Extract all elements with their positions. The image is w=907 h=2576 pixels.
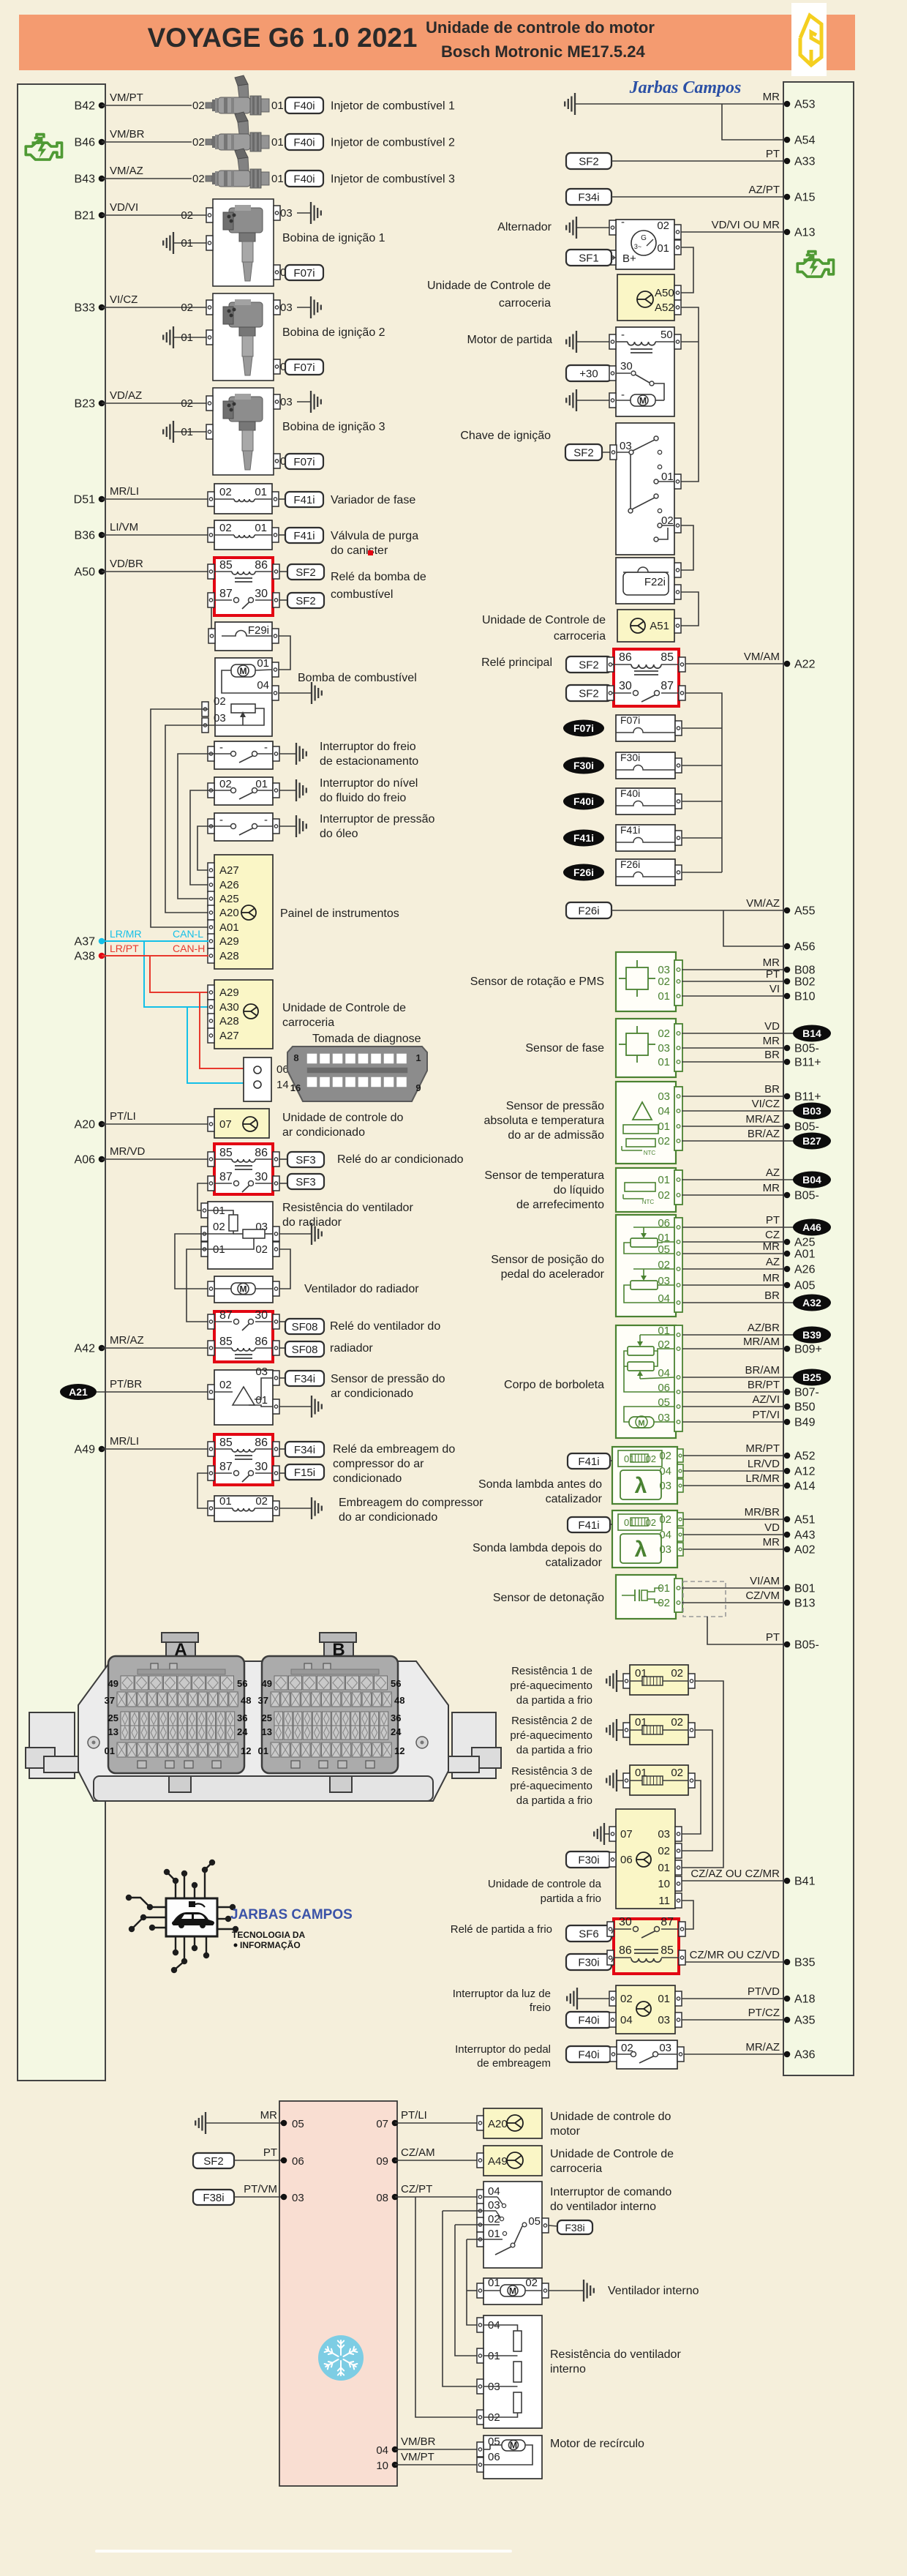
svg-text:carroceria: carroceria: [499, 297, 551, 310]
svg-text:03: 03: [658, 1828, 670, 1841]
svg-text:pedal do acelerador: pedal do acelerador: [501, 1268, 605, 1281]
svg-text:A18: A18: [794, 1993, 816, 2006]
svg-text:F07i: F07i: [293, 456, 315, 468]
svg-text:F41i: F41i: [578, 1456, 599, 1468]
svg-text:Bosch Motronic ME17.5.24: Bosch Motronic ME17.5.24: [441, 42, 646, 61]
svg-text:SF08: SF08: [292, 1344, 318, 1356]
svg-text:Interruptor de comando: Interruptor de comando: [550, 2186, 671, 2198]
svg-text:combustível: combustível: [331, 588, 393, 601]
svg-text:12: 12: [394, 1745, 404, 1756]
svg-text:F40i: F40i: [578, 2049, 599, 2062]
svg-text:02: 02: [192, 136, 205, 149]
svg-text:AZ/BR: AZ/BR: [748, 1322, 780, 1334]
svg-text:F40i: F40i: [573, 795, 594, 807]
svg-text:catalizador: catalizador: [546, 1493, 603, 1505]
svg-text:partida a frio: partida a frio: [541, 1892, 601, 1905]
svg-text:03: 03: [488, 2199, 500, 2212]
svg-text:VD/VI OU MR: VD/VI OU MR: [712, 219, 780, 231]
svg-text:Sensor de fase: Sensor de fase: [525, 1042, 604, 1055]
svg-text:F26i: F26i: [578, 905, 599, 918]
svg-text:B07-: B07-: [794, 1387, 819, 1399]
svg-text:-: -: [219, 741, 223, 754]
svg-text:SF3: SF3: [296, 1154, 316, 1167]
svg-text:B05-: B05-: [794, 1121, 819, 1134]
svg-text:M: M: [240, 666, 247, 676]
svg-text:08: 08: [376, 2192, 388, 2204]
svg-text:B25: B25: [802, 1371, 821, 1383]
svg-text:Válvula de purga: Válvula de purga: [331, 530, 418, 542]
svg-text:LR/MR: LR/MR: [110, 928, 142, 940]
svg-text:BR: BR: [764, 1289, 780, 1302]
svg-text:Sensor de pressão do: Sensor de pressão do: [331, 1373, 445, 1385]
svg-text:PT/VI: PT/VI: [752, 1409, 780, 1421]
svg-text:Relé da embreagem do: Relé da embreagem do: [333, 1443, 455, 1456]
svg-text:interno: interno: [550, 2363, 586, 2375]
svg-text:A46: A46: [802, 1221, 821, 1233]
svg-text:01: 01: [658, 990, 670, 1003]
svg-text:01: 01: [271, 136, 284, 149]
svg-text:85: 85: [219, 1437, 233, 1449]
svg-text:A25: A25: [794, 1237, 816, 1249]
svg-text:Unidade de Controle de: Unidade de Controle de: [550, 2148, 674, 2160]
svg-text:A32: A32: [802, 1297, 821, 1308]
svg-text:Bobina de ignição 1: Bobina de ignição 1: [282, 232, 385, 244]
svg-text:8: 8: [293, 1052, 298, 1063]
svg-text:F30i: F30i: [573, 760, 594, 771]
svg-text:SF6: SF6: [579, 1928, 599, 1941]
svg-text:Resistência do ventilador: Resistência do ventilador: [282, 1202, 413, 1214]
svg-text:01: 01: [271, 173, 284, 185]
svg-text:Sensor de pressão: Sensor de pressão: [506, 1100, 604, 1112]
svg-text:03: 03: [658, 1090, 670, 1103]
svg-text:B46: B46: [75, 137, 96, 149]
svg-text:SF3: SF3: [296, 1176, 316, 1188]
svg-text:A28: A28: [219, 1015, 239, 1027]
svg-text:A38: A38: [75, 951, 96, 963]
svg-text:B50: B50: [794, 1401, 816, 1414]
svg-text:Sensor de temperatura: Sensor de temperatura: [484, 1169, 604, 1182]
svg-text:01: 01: [255, 486, 267, 498]
svg-text:A05: A05: [794, 1280, 816, 1292]
svg-text:01: 01: [624, 1517, 634, 1528]
svg-text:30: 30: [619, 680, 632, 692]
svg-text:F29i: F29i: [248, 624, 269, 637]
svg-text:12: 12: [241, 1745, 251, 1756]
svg-text:04: 04: [376, 2444, 388, 2457]
svg-text:catalizador: catalizador: [546, 1557, 603, 1569]
svg-text:do canister: do canister: [331, 544, 388, 557]
svg-text:03: 03: [658, 1042, 670, 1055]
svg-text:pré-aquecimento: pré-aquecimento: [510, 1729, 592, 1742]
svg-text:02: 02: [255, 1243, 268, 1256]
svg-text:AZ: AZ: [766, 1167, 780, 1179]
svg-text:02: 02: [620, 1993, 633, 2005]
svg-text:02: 02: [219, 522, 232, 534]
svg-text:B+: B+: [622, 252, 636, 265]
svg-text:A26: A26: [219, 879, 239, 891]
svg-text:Resistência do ventilador: Resistência do ventilador: [550, 2348, 681, 2361]
svg-text:VI: VI: [769, 983, 780, 995]
svg-text:Injetor de combustível 1: Injetor de combustível 1: [331, 100, 455, 113]
svg-text:87: 87: [661, 1916, 674, 1928]
svg-text:85: 85: [661, 1944, 674, 1957]
svg-text:05: 05: [292, 2118, 304, 2130]
svg-text:A55: A55: [794, 905, 816, 918]
svg-text:-: -: [264, 814, 268, 826]
svg-text:86: 86: [255, 559, 268, 572]
svg-text:02: 02: [671, 1716, 683, 1729]
svg-text:A01: A01: [219, 921, 239, 934]
svg-text:B08: B08: [794, 965, 816, 977]
svg-text:A35: A35: [794, 2015, 816, 2027]
svg-text:A30: A30: [219, 1001, 239, 1014]
svg-text:VI/AM: VI/AM: [750, 1575, 780, 1587]
svg-text:MR/VD: MR/VD: [110, 1145, 146, 1158]
svg-text:A28: A28: [219, 950, 239, 962]
svg-text:9: 9: [415, 1082, 421, 1093]
svg-text:30: 30: [255, 1461, 268, 1473]
svg-text:BR: BR: [764, 1049, 780, 1061]
svg-text:06: 06: [488, 2451, 500, 2463]
svg-text:-: -: [219, 814, 223, 826]
svg-text:F34i: F34i: [578, 192, 599, 204]
svg-text:A12: A12: [794, 1466, 816, 1478]
svg-text:03: 03: [280, 302, 293, 314]
svg-text:01: 01: [658, 1120, 670, 1133]
svg-text:INFORMAÇÃO: INFORMAÇÃO: [240, 1939, 301, 1950]
svg-text:BR/AM: BR/AM: [745, 1364, 780, 1377]
svg-text:02: 02: [219, 778, 232, 790]
svg-text:48: 48: [241, 1695, 251, 1706]
svg-text:Relé do ventilador do: Relé do ventilador do: [330, 1320, 440, 1333]
svg-text:VM/BR: VM/BR: [110, 128, 145, 141]
svg-text:11: 11: [658, 1895, 670, 1907]
svg-text:F40i: F40i: [578, 2015, 599, 2027]
svg-text:A22: A22: [794, 659, 816, 671]
svg-text:F38i: F38i: [565, 2222, 584, 2234]
svg-text:Embreagem do compressor: Embreagem do compressor: [339, 1497, 483, 1509]
svg-text:F30i: F30i: [620, 752, 640, 763]
svg-text:25: 25: [262, 1712, 272, 1723]
svg-text:LR/MR: LR/MR: [745, 1472, 780, 1485]
svg-text:LR/PT: LR/PT: [110, 943, 139, 954]
svg-text:Interruptor da luz de: Interruptor da luz de: [453, 1988, 551, 2000]
svg-text:pré-aquecimento: pré-aquecimento: [510, 1780, 592, 1792]
svg-text:03: 03: [280, 396, 293, 408]
svg-text:Interruptor de pressão: Interruptor de pressão: [320, 813, 435, 825]
svg-text:04: 04: [257, 679, 269, 692]
svg-text:30: 30: [619, 1916, 632, 1928]
svg-text:B33: B33: [75, 302, 96, 315]
svg-text:SF1: SF1: [579, 252, 599, 265]
svg-text:04: 04: [659, 1465, 671, 1478]
svg-text:VM/AZ: VM/AZ: [110, 165, 143, 177]
svg-text:49: 49: [108, 1678, 118, 1689]
svg-text:02: 02: [192, 173, 205, 185]
svg-text:02: 02: [671, 1667, 683, 1680]
svg-text:A20: A20: [488, 2118, 508, 2130]
svg-text:A20: A20: [219, 907, 239, 919]
svg-text:VM/PT: VM/PT: [401, 2451, 434, 2463]
svg-text:Corpo de borboleta: Corpo de borboleta: [504, 1379, 604, 1391]
svg-text:VOYAGE G6 1.0 2021: VOYAGE G6 1.0 2021: [148, 23, 418, 53]
svg-text:CZ/MR OU CZ/VD: CZ/MR OU CZ/VD: [690, 1949, 780, 1961]
svg-text:04: 04: [488, 2185, 500, 2198]
svg-text:SF08: SF08: [292, 1321, 318, 1333]
svg-text:Sonda lambda antes do: Sonda lambda antes do: [478, 1478, 602, 1491]
svg-text:VM/AM: VM/AM: [744, 651, 780, 663]
svg-text:01: 01: [258, 1745, 268, 1756]
svg-text:do ar condicionado: do ar condicionado: [339, 1511, 437, 1524]
svg-text:B02: B02: [794, 976, 816, 989]
svg-text:37: 37: [258, 1695, 268, 1706]
svg-text:B05-: B05-: [794, 1639, 819, 1652]
svg-text:02: 02: [181, 209, 193, 222]
svg-text:02: 02: [525, 2277, 538, 2289]
svg-text:VM/PT: VM/PT: [110, 91, 143, 104]
svg-text:F40i: F40i: [293, 100, 315, 113]
svg-text:02: 02: [213, 1221, 225, 1233]
svg-text:50: 50: [661, 329, 673, 341]
svg-text:B04: B04: [802, 1174, 821, 1186]
svg-text:Ventilador interno: Ventilador interno: [608, 2285, 699, 2297]
svg-text:F41i: F41i: [293, 494, 315, 506]
svg-text:F15i: F15i: [294, 1467, 315, 1479]
svg-text:Motor de partida: Motor de partida: [467, 334, 552, 346]
svg-text:A33: A33: [794, 156, 816, 168]
svg-text:30: 30: [620, 360, 633, 372]
svg-text:F26i: F26i: [573, 866, 594, 878]
svg-text:36: 36: [391, 1712, 401, 1723]
svg-text:F34i: F34i: [294, 1444, 315, 1456]
svg-text:07: 07: [620, 1828, 633, 1841]
svg-text:A14: A14: [794, 1480, 816, 1493]
svg-text:SF2: SF2: [296, 566, 316, 579]
svg-text:A27: A27: [219, 1030, 239, 1042]
svg-text:F07i: F07i: [293, 267, 315, 280]
svg-text:01: 01: [658, 1993, 670, 2005]
svg-text:JARBAS CAMPOS: JARBAS CAMPOS: [230, 1907, 353, 1922]
svg-text:01: 01: [657, 242, 669, 255]
svg-text:02: 02: [658, 976, 670, 988]
svg-text:A54: A54: [794, 135, 816, 147]
svg-text:03: 03: [658, 2014, 670, 2026]
svg-text:Motor de recírculo: Motor de recírculo: [550, 2438, 644, 2450]
svg-text:24: 24: [391, 1726, 402, 1737]
svg-text:A43: A43: [794, 1529, 816, 1542]
svg-text:01: 01: [488, 2277, 500, 2289]
svg-text:-: -: [621, 389, 625, 401]
svg-text:A29: A29: [219, 935, 239, 948]
svg-text:A51: A51: [650, 620, 669, 632]
svg-text:B42: B42: [75, 100, 96, 113]
svg-text:carroceria: carroceria: [282, 1016, 334, 1029]
svg-text:D51: D51: [74, 494, 95, 506]
svg-text:de arrefecimento: de arrefecimento: [516, 1199, 604, 1211]
svg-text:86: 86: [619, 651, 632, 664]
svg-text:carroceria: carroceria: [554, 630, 606, 643]
svg-text:Resistência 3 de: Resistência 3 de: [511, 1765, 592, 1778]
svg-text:pré-aquecimento: pré-aquecimento: [510, 1680, 592, 1692]
svg-text:86: 86: [255, 1147, 268, 1159]
svg-text:02: 02: [255, 1495, 268, 1508]
svg-text:Relé do ar condicionado: Relé do ar condicionado: [337, 1153, 464, 1166]
svg-text:02: 02: [658, 1845, 670, 1857]
svg-text:02: 02: [658, 1135, 670, 1147]
svg-text:MR/BR: MR/BR: [745, 1506, 780, 1519]
svg-text:TECNOLOGIA DA: TECNOLOGIA DA: [232, 1930, 306, 1940]
svg-text:F41i: F41i: [620, 824, 640, 836]
svg-text:MR: MR: [763, 956, 780, 969]
svg-text:da partida a frio: da partida a frio: [516, 1794, 592, 1807]
svg-text:Unidade de controle do motor: Unidade de controle do motor: [426, 18, 655, 37]
svg-text:F41i: F41i: [578, 1519, 599, 1532]
svg-text:09: 09: [376, 2155, 388, 2168]
svg-text:MR/PT: MR/PT: [745, 1442, 780, 1455]
svg-text:do ventilador interno: do ventilador interno: [550, 2201, 656, 2213]
svg-text:freio: freio: [530, 2002, 551, 2014]
svg-text:30: 30: [255, 1171, 268, 1183]
svg-text:Sensor de detonação: Sensor de detonação: [493, 1592, 604, 1604]
svg-text:01: 01: [255, 778, 268, 790]
svg-text:MR/LI: MR/LI: [110, 485, 139, 498]
svg-text:λ: λ: [635, 1474, 647, 1498]
svg-text:da partida a frio: da partida a frio: [516, 1694, 592, 1707]
svg-text:F41i: F41i: [293, 530, 315, 542]
svg-text:85: 85: [219, 559, 233, 572]
svg-text:Painel de instrumentos: Painel de instrumentos: [280, 907, 399, 920]
svg-text:MR: MR: [260, 2109, 277, 2122]
svg-text:02: 02: [658, 1189, 670, 1202]
svg-text:Sonda lambda depois do: Sonda lambda depois do: [473, 1542, 602, 1554]
svg-text:01: 01: [658, 1056, 670, 1068]
svg-text:B36: B36: [75, 530, 96, 542]
svg-text:M: M: [638, 1419, 644, 1428]
svg-text:03: 03: [659, 2042, 671, 2054]
svg-text:compressor do ar: compressor do ar: [333, 1458, 424, 1470]
svg-text:F30i: F30i: [578, 1957, 599, 1969]
svg-text:AZ: AZ: [766, 1256, 780, 1268]
svg-text:SF2: SF2: [573, 447, 594, 460]
svg-text:A52: A52: [655, 302, 674, 314]
svg-text:85: 85: [219, 1147, 233, 1159]
svg-text:F38i: F38i: [203, 2192, 224, 2204]
svg-text:02: 02: [646, 1517, 656, 1528]
svg-text:02: 02: [658, 1027, 670, 1040]
svg-text:01: 01: [219, 1495, 232, 1508]
svg-text:F22i: F22i: [644, 576, 666, 588]
svg-text:02: 02: [214, 695, 226, 708]
svg-text:MR/AZ: MR/AZ: [110, 1334, 144, 1347]
svg-text:01: 01: [271, 100, 284, 112]
svg-text:F41i: F41i: [573, 832, 594, 844]
svg-text:NTC: NTC: [642, 1199, 655, 1205]
svg-text:06: 06: [620, 1854, 633, 1866]
svg-text:86: 86: [255, 1336, 268, 1348]
svg-text:PT/LI: PT/LI: [401, 2109, 427, 2122]
svg-text:03: 03: [659, 1543, 671, 1556]
svg-text:MR/LI: MR/LI: [110, 1435, 139, 1448]
svg-text:A01: A01: [794, 1248, 816, 1261]
svg-text:M: M: [510, 2441, 517, 2451]
svg-text:A06: A06: [75, 1154, 96, 1167]
svg-text:01: 01: [635, 1667, 647, 1680]
svg-text:56: 56: [391, 1678, 401, 1689]
svg-text:A21: A21: [69, 1386, 88, 1398]
svg-text:CZ/AM: CZ/AM: [401, 2146, 435, 2159]
svg-text:AZ/VI: AZ/VI: [752, 1393, 780, 1406]
svg-text:86: 86: [619, 1944, 632, 1957]
svg-text:A56: A56: [794, 941, 816, 954]
svg-text:A15: A15: [794, 192, 816, 204]
svg-text:Relé de partida a frio: Relé de partida a frio: [451, 1923, 552, 1936]
svg-text:Variador de fase: Variador de fase: [331, 494, 415, 506]
svg-text:F34i: F34i: [294, 1373, 315, 1385]
svg-text:CAN-L: CAN-L: [173, 928, 203, 940]
svg-text:Bobina de ignição 3: Bobina de ignição 3: [282, 421, 385, 433]
svg-text:λ: λ: [635, 1538, 647, 1562]
svg-text:30: 30: [255, 1309, 268, 1322]
svg-text:F30i: F30i: [578, 1854, 599, 1867]
svg-text:Interruptor do freio: Interruptor do freio: [320, 741, 416, 753]
svg-text:ar condicionado: ar condicionado: [282, 1126, 365, 1139]
svg-text:M: M: [509, 2286, 516, 2296]
svg-text:de estacionamento: de estacionamento: [320, 755, 418, 768]
svg-text:07: 07: [376, 2118, 388, 2130]
svg-text:01: 01: [181, 426, 193, 438]
svg-text:04: 04: [658, 1105, 670, 1117]
svg-text:B43: B43: [75, 173, 96, 186]
svg-text:radiador: radiador: [330, 1342, 373, 1355]
svg-text:B35: B35: [794, 1957, 816, 1969]
svg-text:02: 02: [219, 1379, 232, 1391]
svg-text:05: 05: [528, 2215, 541, 2228]
svg-text:01: 01: [181, 237, 193, 250]
svg-text:SF2: SF2: [579, 156, 599, 168]
svg-text:02: 02: [181, 397, 193, 410]
svg-text:B21: B21: [75, 210, 96, 222]
svg-text:PT/CZ: PT/CZ: [748, 2007, 780, 2019]
svg-text:M: M: [639, 396, 647, 406]
svg-text:B01: B01: [794, 1583, 816, 1595]
svg-text:Jarbas Campos: Jarbas Campos: [629, 78, 742, 97]
svg-text:03: 03: [658, 964, 670, 976]
svg-text:-: -: [621, 216, 625, 228]
svg-text:25: 25: [108, 1712, 118, 1723]
svg-text:04: 04: [620, 2014, 633, 2026]
svg-text:10: 10: [376, 2460, 388, 2472]
svg-text:Unidade de controle do: Unidade de controle do: [550, 2111, 671, 2123]
svg-text:PT: PT: [766, 1214, 780, 1227]
svg-text:SF2: SF2: [579, 659, 599, 672]
svg-text:Unidade de Controle de: Unidade de Controle de: [427, 280, 551, 292]
svg-text:F40i: F40i: [293, 173, 315, 186]
svg-text:A36: A36: [794, 2049, 816, 2062]
svg-text:do óleo: do óleo: [320, 828, 358, 840]
svg-text:01: 01: [658, 1862, 670, 1874]
svg-text:A49: A49: [488, 2155, 508, 2168]
svg-text:+30: +30: [579, 368, 598, 381]
svg-text:01: 01: [624, 1453, 634, 1464]
svg-text:PT: PT: [766, 968, 780, 981]
svg-text:A02: A02: [794, 1544, 816, 1557]
svg-text:3~: 3~: [634, 243, 641, 250]
svg-text:VD/VI: VD/VI: [110, 201, 138, 214]
svg-text:24: 24: [237, 1726, 248, 1737]
svg-text:A49: A49: [75, 1444, 96, 1456]
svg-text:F07i: F07i: [573, 722, 594, 734]
svg-text:do fluido do freio: do fluido do freio: [320, 792, 406, 804]
